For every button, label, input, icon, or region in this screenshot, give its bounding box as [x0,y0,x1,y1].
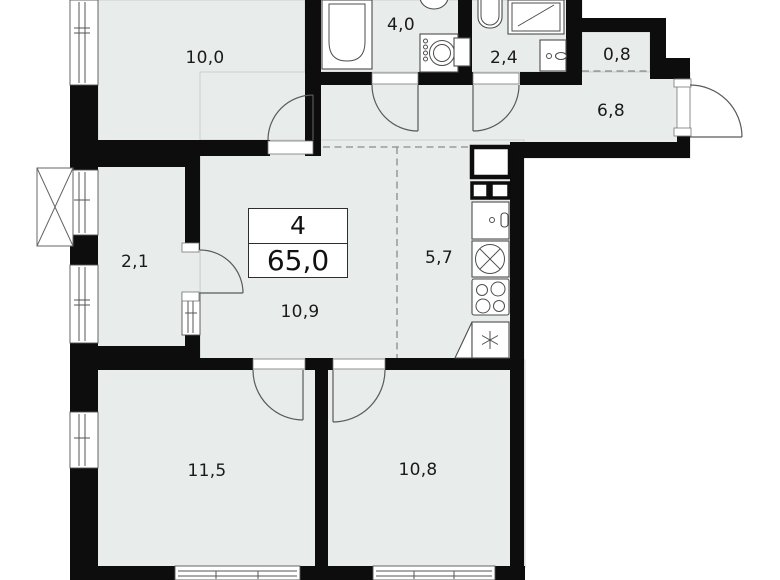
floor-bedrooms-bottom [85,360,525,568]
floorplan: 10,0 4,0 2,4 0,8 6,8 2,1 5,7 10,9 11,5 1… [0,0,780,580]
vent-shaft-icon [472,147,510,198]
kitchen-basin-cross-icon [472,241,509,277]
kitchen-sink-icon [472,202,509,239]
floorplan-drawing [0,0,780,580]
sink-icon [540,40,567,71]
window [70,265,98,343]
window [175,566,300,580]
washing-machine-icon [420,34,470,72]
room-label-bedroom-right: 10,8 [398,460,437,480]
room-label-kitchen: 5,7 [425,248,453,268]
window [70,0,98,85]
summary-box: 4 65,0 [248,208,348,278]
room-label-corridor: 10,9 [280,302,319,322]
balcony-basket-icon [37,168,73,246]
door-swing-entrance [690,85,742,137]
room-label-bathroom: 4,0 [387,15,415,35]
summary-rooms-count: 4 [249,209,347,244]
room-label-storage: 0,8 [603,45,631,65]
shower-icon [508,0,564,34]
floor-areas [85,0,690,568]
window [373,566,495,580]
summary-total-area: 65,0 [249,244,347,278]
room-label-bedroom-left: 11,5 [187,461,226,481]
room-label-wardrobe: 2,1 [121,252,149,272]
room-label-hallway: 6,8 [597,101,625,121]
toilet-icon [478,0,502,28]
stove-icon [472,279,509,315]
room-label-wc: 2,4 [490,48,518,68]
window [70,170,98,235]
window [70,412,98,468]
bathtub-icon [322,0,372,69]
room-label-bedroom-top: 10,0 [185,48,224,68]
